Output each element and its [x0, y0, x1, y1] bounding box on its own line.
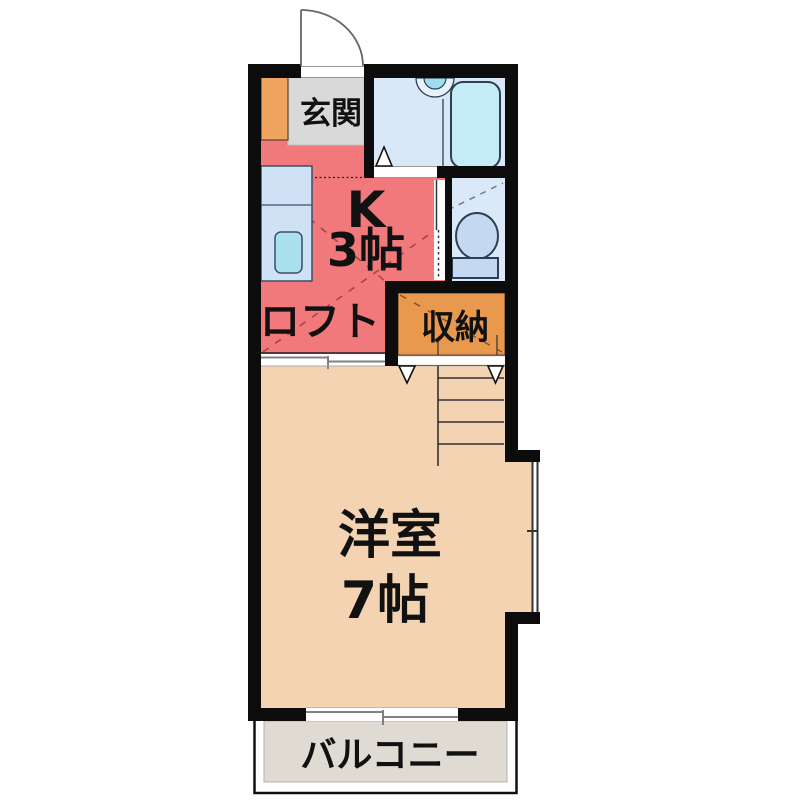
storage-door-track [398, 355, 505, 366]
wall-toilet-left [445, 178, 452, 281]
loft-label: ロフト [260, 299, 380, 345]
wall-right-upper [505, 64, 518, 462]
toilet-tank [452, 258, 498, 278]
wall-left [248, 64, 261, 721]
wall-bay-top [505, 450, 540, 462]
kitchen-sink [275, 232, 302, 273]
entrance-label: 玄関 [300, 96, 362, 132]
wall-storage-top [385, 281, 518, 293]
storage-label: 収納 [421, 308, 489, 348]
floorplan-page: 玄関 K 3帖 ロフト 収納 洋室 7帖 バルコニー [0, 0, 800, 800]
wall-entrance-bathroom [364, 64, 374, 178]
entrance-door-swing-arc [301, 10, 363, 66]
bathtub [451, 82, 500, 168]
kitchen-counter [261, 166, 312, 281]
toilet-bowl [456, 213, 498, 259]
entrance-door [301, 10, 364, 78]
wall-bottom-left [248, 708, 306, 721]
floorplan-canvas: 玄関 K 3帖 ロフト 収納 洋室 7帖 バルコニー [0, 0, 800, 800]
toilet-door-track [434, 180, 445, 280]
wall-storage-left [385, 281, 398, 366]
balcony-label: バルコニー [300, 735, 479, 776]
toilet-fixture [452, 213, 498, 278]
shoe-cabinet [261, 77, 288, 140]
wall-bathroom-bottom [437, 166, 518, 178]
wall-bottom-right [458, 708, 518, 721]
entrance-opening [301, 66, 364, 78]
kitchen-label-size: 3帖 [327, 223, 405, 277]
western-room-label: 洋室 [338, 506, 442, 566]
toilet-door [434, 180, 445, 280]
western-room-size-label: 7帖 [341, 571, 429, 631]
wall-right-lower [505, 612, 518, 721]
bathroom-door-opening [374, 166, 437, 178]
bay-window-floor [505, 462, 532, 612]
wall-top-right [364, 64, 518, 78]
kitchen-sliding-door-track [261, 354, 385, 366]
